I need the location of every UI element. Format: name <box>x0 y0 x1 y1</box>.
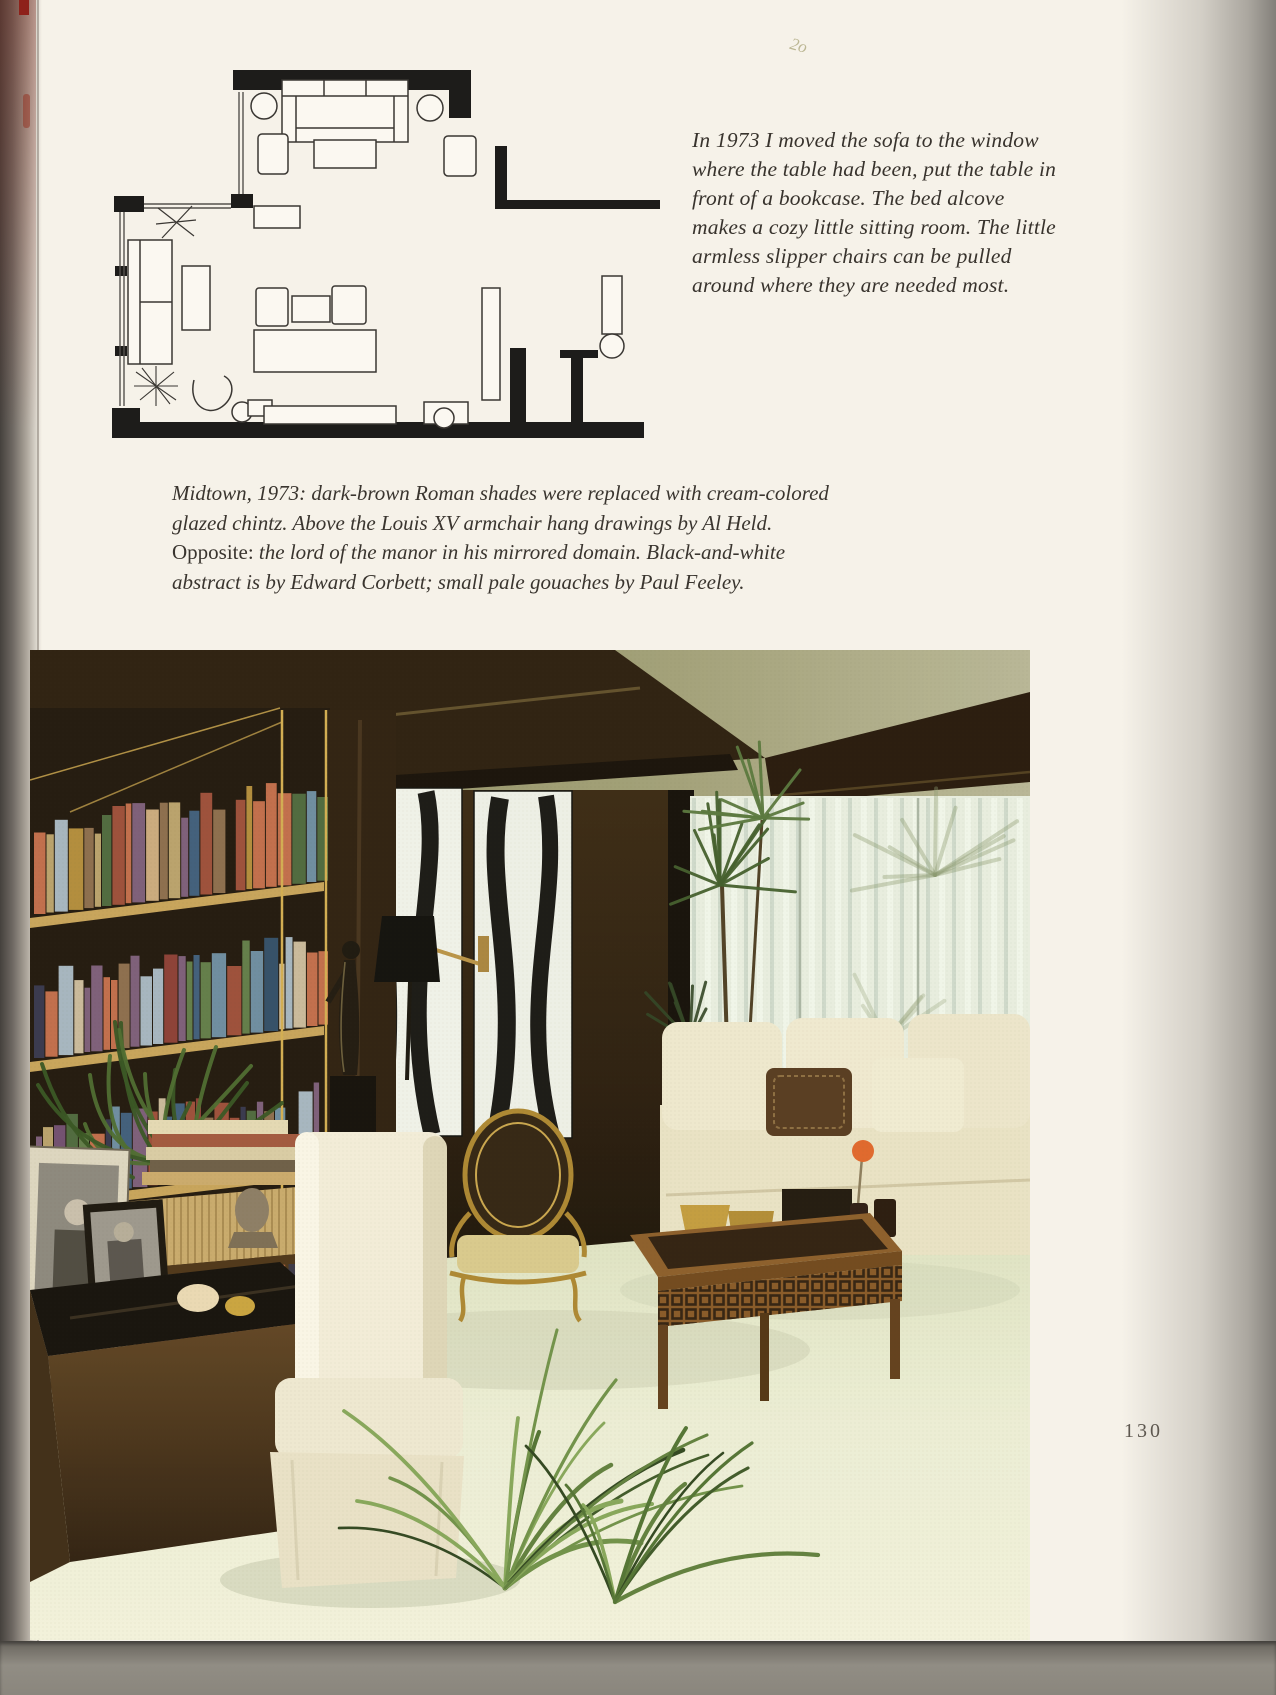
plan-furniture <box>128 80 624 428</box>
book-page: 2o <box>0 0 1276 1695</box>
interior-photograph <box>30 650 1030 1640</box>
intro-line: where the table had been, put the table … <box>692 155 1102 184</box>
intro-line: armless slipper chairs can be pulled <box>692 242 1102 271</box>
red-page-edge-mark <box>19 0 29 15</box>
caption-roman: Opposite: <box>172 540 254 564</box>
caption-italic: Midtown, 1973: dark-brown Roman shades w… <box>172 481 829 505</box>
pencil-mark: 2o <box>788 34 810 58</box>
intro-line: around where they are needed most. <box>692 271 1102 300</box>
intro-line: front of a bookcase. The bed alcove <box>692 184 1102 213</box>
caption-line: Opposite: the lord of the manor in his m… <box>172 538 912 568</box>
floor-plan-diagram <box>112 50 660 442</box>
red-page-edge-mark <box>23 94 30 128</box>
caption-italic: abstract is by Edward Corbett; small pal… <box>172 570 745 594</box>
caption-italic: the lord of the manor in his mirrored do… <box>254 540 785 564</box>
photo-tint <box>30 650 1030 1640</box>
intro-line: In 1973 I moved the sofa to the window <box>692 126 1102 155</box>
intro-line: makes a cozy little sitting room. The li… <box>692 213 1102 242</box>
scan-bottom-band <box>0 1641 1276 1695</box>
caption-line: glazed chintz. Above the Louis XV armcha… <box>172 509 912 539</box>
caption-line: Midtown, 1973: dark-brown Roman shades w… <box>172 479 912 509</box>
photo-caption: Midtown, 1973: dark-brown Roman shades w… <box>172 479 912 597</box>
page-left-edge-tint <box>0 0 36 430</box>
page-number: 130 <box>1124 1420 1163 1443</box>
caption-italic: glazed chintz. Above the Louis XV armcha… <box>172 511 772 535</box>
intro-paragraph: In 1973 I moved the sofa to the window w… <box>692 126 1102 300</box>
caption-line: abstract is by Edward Corbett; small pal… <box>172 568 912 598</box>
